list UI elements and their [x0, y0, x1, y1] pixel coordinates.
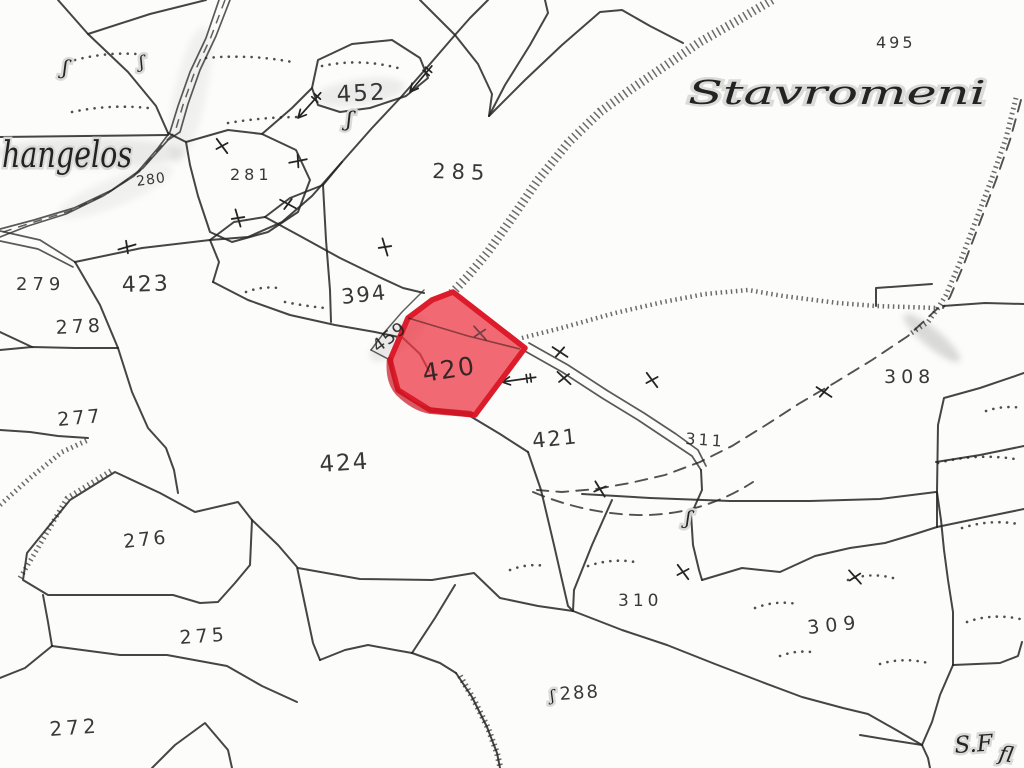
highlighted-parcel-group: 420 — [390, 292, 525, 415]
parcel-number-label: 279 — [16, 274, 65, 295]
parcel-number-label: 281 — [230, 165, 273, 184]
place-name-label: Stavromeni — [688, 73, 986, 112]
parcel-number-label: 308 — [884, 366, 935, 388]
parcel-number-label: 272 — [49, 714, 101, 741]
place-name-label: ﬂ — [995, 741, 1015, 767]
parcel-number-label: 311 — [685, 429, 726, 451]
boundary-change-symbol: ʃ — [58, 55, 73, 80]
scrub-dot-marks — [72, 54, 1022, 664]
boundary-change-symbol: ʃ — [546, 686, 559, 705]
parcel-number-label: 275 — [179, 624, 229, 649]
cadastral-map-viewport: 420 495452285280281279423278394459421311… — [0, 0, 1024, 768]
parcel-number-label: 424 — [319, 449, 371, 478]
parcel-number-label: 452 — [336, 79, 387, 108]
parcel-boundary-lines — [0, 0, 1024, 768]
parcel-number-label: 277 — [57, 405, 104, 431]
parcel-number-label: 423 — [121, 271, 170, 298]
boundary-change-symbol: ʃ — [134, 52, 149, 73]
parcel-number-label: 276 — [122, 526, 169, 553]
cadastral-map-canvas: 420 495452285280281279423278394459421311… — [0, 0, 1024, 768]
parcel-number-label: 310 — [618, 591, 662, 611]
hachure-marks — [0, 0, 1016, 766]
parcel-number-label: 495 — [876, 33, 916, 52]
parcel-number-label: 394 — [340, 280, 388, 309]
dashed-boundary-lines — [533, 100, 1021, 515]
parcel-number-label: 280 — [135, 170, 167, 190]
parcel-number-label: 288 — [559, 681, 601, 705]
parcel-number-label: 309 — [806, 611, 862, 639]
parcel-number-label: 278 — [55, 314, 104, 338]
parcel-number-label: 285 — [432, 159, 491, 185]
road-lines — [0, 0, 706, 470]
place-name-label: hangelos — [2, 135, 132, 176]
parcel-number-label: 421 — [531, 424, 579, 453]
place-name-label: S.F — [954, 730, 995, 759]
